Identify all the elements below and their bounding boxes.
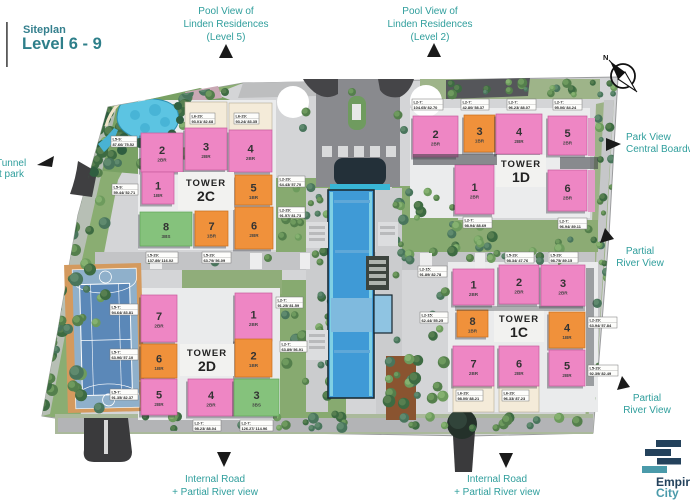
svg-text:L6-29:: L6-29: [458, 391, 469, 396]
svg-text:L2-29:: L2-29: [590, 318, 601, 323]
svg-text:2BR: 2BR [469, 292, 479, 297]
svg-text:95.06/ 84.24: 95.06/ 84.24 [555, 105, 577, 110]
svg-text:L6-29:: L6-29: [504, 391, 515, 396]
svg-text:L5-29:: L5-29: [204, 253, 215, 258]
svg-text:2BR: 2BR [562, 373, 572, 378]
svg-text:2BR: 2BR [206, 403, 216, 408]
svg-text:4: 4 [208, 390, 215, 402]
svg-text:98.94/ 88.69: 98.94/ 88.69 [465, 223, 487, 228]
svg-text:Internal Road: Internal Road [185, 474, 245, 485]
svg-text:1: 1 [470, 280, 476, 292]
svg-text:98.23/ 88.04: 98.23/ 88.04 [195, 426, 217, 431]
svg-text:42.80/ 58.37: 42.80/ 58.37 [463, 105, 485, 110]
svg-text:Level 6 - 9: Level 6 - 9 [22, 35, 102, 53]
svg-text:6: 6 [516, 359, 522, 371]
svg-text:Partial: Partial [626, 246, 654, 257]
svg-text:2BR: 2BR [563, 141, 573, 146]
svg-text:L5-7:: L5-7: [112, 350, 121, 355]
svg-text:Internal Road: Internal Road [467, 474, 527, 485]
svg-text:91.25/ 81.59: 91.25/ 81.59 [278, 303, 300, 308]
svg-text:2D: 2D [198, 358, 216, 374]
svg-text:L5-29:: L5-29: [551, 253, 562, 258]
svg-text:2: 2 [250, 351, 256, 363]
svg-text:1: 1 [471, 182, 477, 194]
svg-text:3BS: 3BS [252, 403, 261, 408]
svg-text:1D: 1D [512, 169, 530, 185]
svg-text:2: 2 [432, 129, 438, 141]
svg-text:62.44/ 55.25: 62.44/ 55.25 [422, 318, 444, 323]
svg-text:1BR: 1BR [249, 195, 259, 200]
svg-text:(Level 2): (Level 2) [411, 32, 450, 43]
svg-text:3: 3 [253, 390, 259, 402]
svg-text:2BR: 2BR [154, 402, 164, 407]
svg-text:4: 4 [247, 144, 254, 156]
svg-text:3: 3 [203, 142, 209, 154]
svg-text:7: 7 [156, 311, 162, 323]
svg-text:63.79/ 56.09: 63.79/ 56.09 [204, 258, 226, 263]
svg-text:L2-7:: L2-7: [195, 421, 204, 426]
svg-text:Central Boardwal: Central Boardwal [626, 144, 690, 155]
svg-text:2BR: 2BR [154, 324, 164, 329]
svg-text:2BR: 2BR [249, 322, 259, 327]
svg-text:L6-29:: L6-29: [236, 114, 247, 119]
svg-text:Linden Residences: Linden Residences [183, 19, 268, 30]
svg-text:91.89/ 82.78: 91.89/ 82.78 [420, 272, 442, 277]
svg-text:1BR: 1BR [207, 234, 217, 239]
svg-text:Partial: Partial [633, 393, 661, 404]
svg-text:3BS: 3BS [162, 234, 171, 239]
svg-text:L5-29:: L5-29: [507, 253, 518, 258]
svg-text:L2-7:: L2-7: [414, 100, 423, 105]
svg-text:3: 3 [476, 126, 482, 138]
svg-text:2BR: 2BR [563, 196, 573, 201]
svg-text:Tunnel: Tunnel [0, 158, 26, 169]
svg-text:6: 6 [251, 221, 257, 233]
svg-text:2BR: 2BR [558, 291, 568, 296]
svg-text:River View: River View [623, 405, 671, 416]
svg-text:L2-15:: L2-15: [420, 267, 431, 272]
svg-text:Linden Residences: Linden Residences [387, 19, 472, 30]
svg-text:64.43/ 57.70: 64.43/ 57.70 [280, 182, 302, 187]
svg-text:2BR: 2BR [249, 233, 259, 238]
svg-text:98.00/ 88.21: 98.00/ 88.21 [458, 396, 480, 401]
svg-text:63.96/ 57.10: 63.96/ 57.10 [112, 355, 134, 360]
svg-text:L2-7:: L2-7: [560, 219, 569, 224]
svg-text:L2-7:: L2-7: [278, 298, 287, 303]
svg-text:98.75/ 89.15: 98.75/ 89.15 [551, 258, 573, 263]
svg-text:L5-9:: L5-9: [114, 185, 123, 190]
svg-text:1C: 1C [510, 324, 528, 340]
svg-text:L5-7:: L5-7: [112, 390, 121, 395]
svg-text:L2-7:: L2-7: [282, 342, 291, 347]
svg-text:L2-7:: L2-7: [555, 100, 564, 105]
svg-text:92.39/ 82.49: 92.39/ 82.49 [590, 371, 612, 376]
svg-text:63.94/ 57.84: 63.94/ 57.84 [590, 323, 612, 328]
svg-text:L2-29:: L2-29: [280, 177, 291, 182]
svg-text:2: 2 [516, 277, 522, 289]
svg-text:(Level 5): (Level 5) [207, 32, 246, 43]
svg-text:River View: River View [616, 258, 664, 269]
svg-text:L2-7:: L2-7: [242, 421, 251, 426]
svg-text:98.34/ 47.76: 98.34/ 47.76 [507, 258, 529, 263]
svg-text:Pool View of: Pool View of [198, 6, 254, 17]
svg-text:137.89/ 116.02: 137.89/ 116.02 [148, 258, 175, 263]
svg-text:94.64/ 83.81: 94.64/ 83.81 [112, 310, 134, 315]
svg-text:2BR: 2BR [470, 195, 480, 200]
svg-text:63.89/ 56.91: 63.89/ 56.91 [282, 347, 304, 352]
svg-text:City: City [656, 486, 679, 500]
svg-text:5: 5 [156, 390, 162, 402]
svg-text:96.23/ 88.07: 96.23/ 88.07 [509, 105, 531, 110]
svg-text:3: 3 [560, 278, 566, 290]
svg-text:1: 1 [250, 310, 256, 322]
svg-text:2BR: 2BR [469, 371, 479, 376]
svg-text:96.94/ 89.11: 96.94/ 89.11 [560, 224, 582, 229]
svg-text:1BR: 1BR [154, 366, 164, 371]
svg-text:2C: 2C [197, 188, 215, 204]
svg-text:2BR: 2BR [514, 139, 524, 144]
svg-text:L2-29:: L2-29: [280, 208, 291, 213]
svg-text:Pool View of: Pool View of [402, 6, 458, 17]
svg-text:5: 5 [564, 361, 570, 373]
svg-text:2BR: 2BR [157, 158, 167, 163]
svg-text:93.01/ 82.68: 93.01/ 82.68 [192, 119, 214, 124]
svg-text:126.27/ 114.96: 126.27/ 114.96 [242, 426, 269, 431]
svg-text:7: 7 [470, 359, 476, 371]
svg-text:4: 4 [564, 323, 571, 335]
svg-text:7: 7 [208, 221, 214, 233]
svg-text:t park: t park [0, 169, 25, 180]
svg-text:L5-7:: L5-7: [112, 305, 121, 310]
svg-text:L2-7:: L2-7: [465, 218, 474, 223]
svg-text:6: 6 [564, 183, 570, 195]
svg-text:L2-7:: L2-7: [509, 100, 518, 105]
svg-text:4: 4 [516, 127, 523, 139]
svg-text:L5-29:: L5-29: [590, 366, 601, 371]
svg-text:+ Partial River view: + Partial River view [454, 487, 541, 498]
svg-text:L2-15:: L2-15: [422, 313, 433, 318]
svg-text:N: N [603, 53, 608, 62]
svg-text:L5-9:: L5-9: [113, 137, 122, 142]
svg-text:91.35/ 82.37: 91.35/ 82.37 [112, 395, 134, 400]
svg-text:1BR: 1BR [562, 335, 572, 340]
svg-text:1BR: 1BR [153, 193, 163, 198]
svg-text:96.33/ 87.23: 96.33/ 87.23 [504, 396, 526, 401]
svg-text:2: 2 [159, 145, 165, 157]
svg-text:5: 5 [564, 128, 570, 140]
svg-text:2BR: 2BR [514, 371, 524, 376]
svg-text:91.57/ 81.73: 91.57/ 81.73 [280, 213, 302, 218]
svg-text:5: 5 [250, 183, 256, 195]
svg-text:8: 8 [163, 222, 169, 234]
svg-text:L5-29:: L5-29: [148, 253, 159, 258]
svg-text:2BR: 2BR [201, 154, 211, 159]
svg-text:104.65/ 82.70: 104.65/ 82.70 [414, 105, 438, 110]
svg-text:1: 1 [155, 181, 161, 193]
svg-text:1BR: 1BR [468, 329, 478, 334]
svg-text:2BR: 2BR [514, 290, 524, 295]
svg-text:Park View: Park View [626, 132, 672, 143]
svg-text:L6-29:: L6-29: [192, 114, 203, 119]
svg-text:+ Partial River view: + Partial River view [172, 487, 259, 498]
svg-text:1BR: 1BR [475, 139, 485, 144]
svg-text:2BR: 2BR [431, 142, 441, 147]
svg-text:93.24/ 83.35: 93.24/ 83.35 [236, 119, 258, 124]
svg-text:2BR: 2BR [246, 156, 256, 161]
svg-text:6: 6 [156, 354, 162, 366]
svg-text:8: 8 [469, 316, 475, 328]
svg-text:1BR: 1BR [249, 363, 259, 368]
svg-text:L2-7:: L2-7: [463, 100, 472, 105]
svg-text:59.44/ 52.71: 59.44/ 52.71 [114, 190, 136, 195]
svg-text:87.66/ 75.52: 87.66/ 75.52 [113, 142, 135, 147]
